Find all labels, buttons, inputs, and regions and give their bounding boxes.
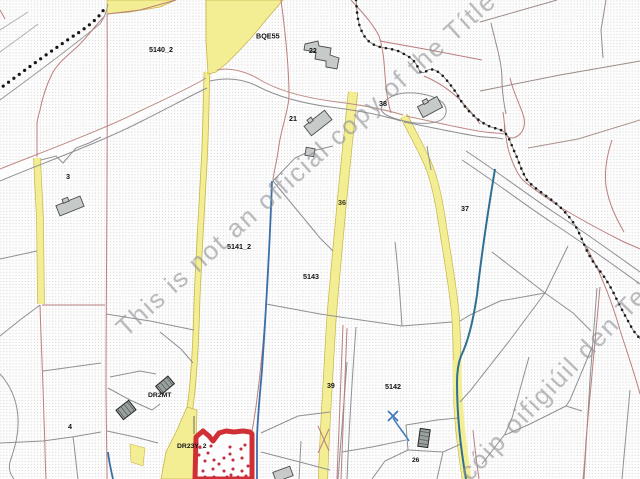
svg-text:BQE55: BQE55 bbox=[256, 32, 280, 41]
svg-text:DR23Y_2: DR23Y_2 bbox=[177, 443, 207, 450]
svg-text:4: 4 bbox=[68, 422, 72, 431]
svg-text:21: 21 bbox=[289, 114, 297, 123]
svg-text:26: 26 bbox=[412, 457, 420, 464]
svg-text:5143: 5143 bbox=[303, 272, 319, 281]
svg-text:5142: 5142 bbox=[385, 382, 401, 391]
svg-text:5140_2: 5140_2 bbox=[149, 45, 173, 54]
svg-text:39: 39 bbox=[327, 383, 335, 390]
svg-text:36: 36 bbox=[338, 198, 346, 207]
svg-text:22: 22 bbox=[309, 48, 317, 55]
svg-text:DR2MT: DR2MT bbox=[148, 392, 172, 399]
svg-text:3: 3 bbox=[66, 172, 70, 181]
svg-text:37: 37 bbox=[461, 204, 469, 213]
